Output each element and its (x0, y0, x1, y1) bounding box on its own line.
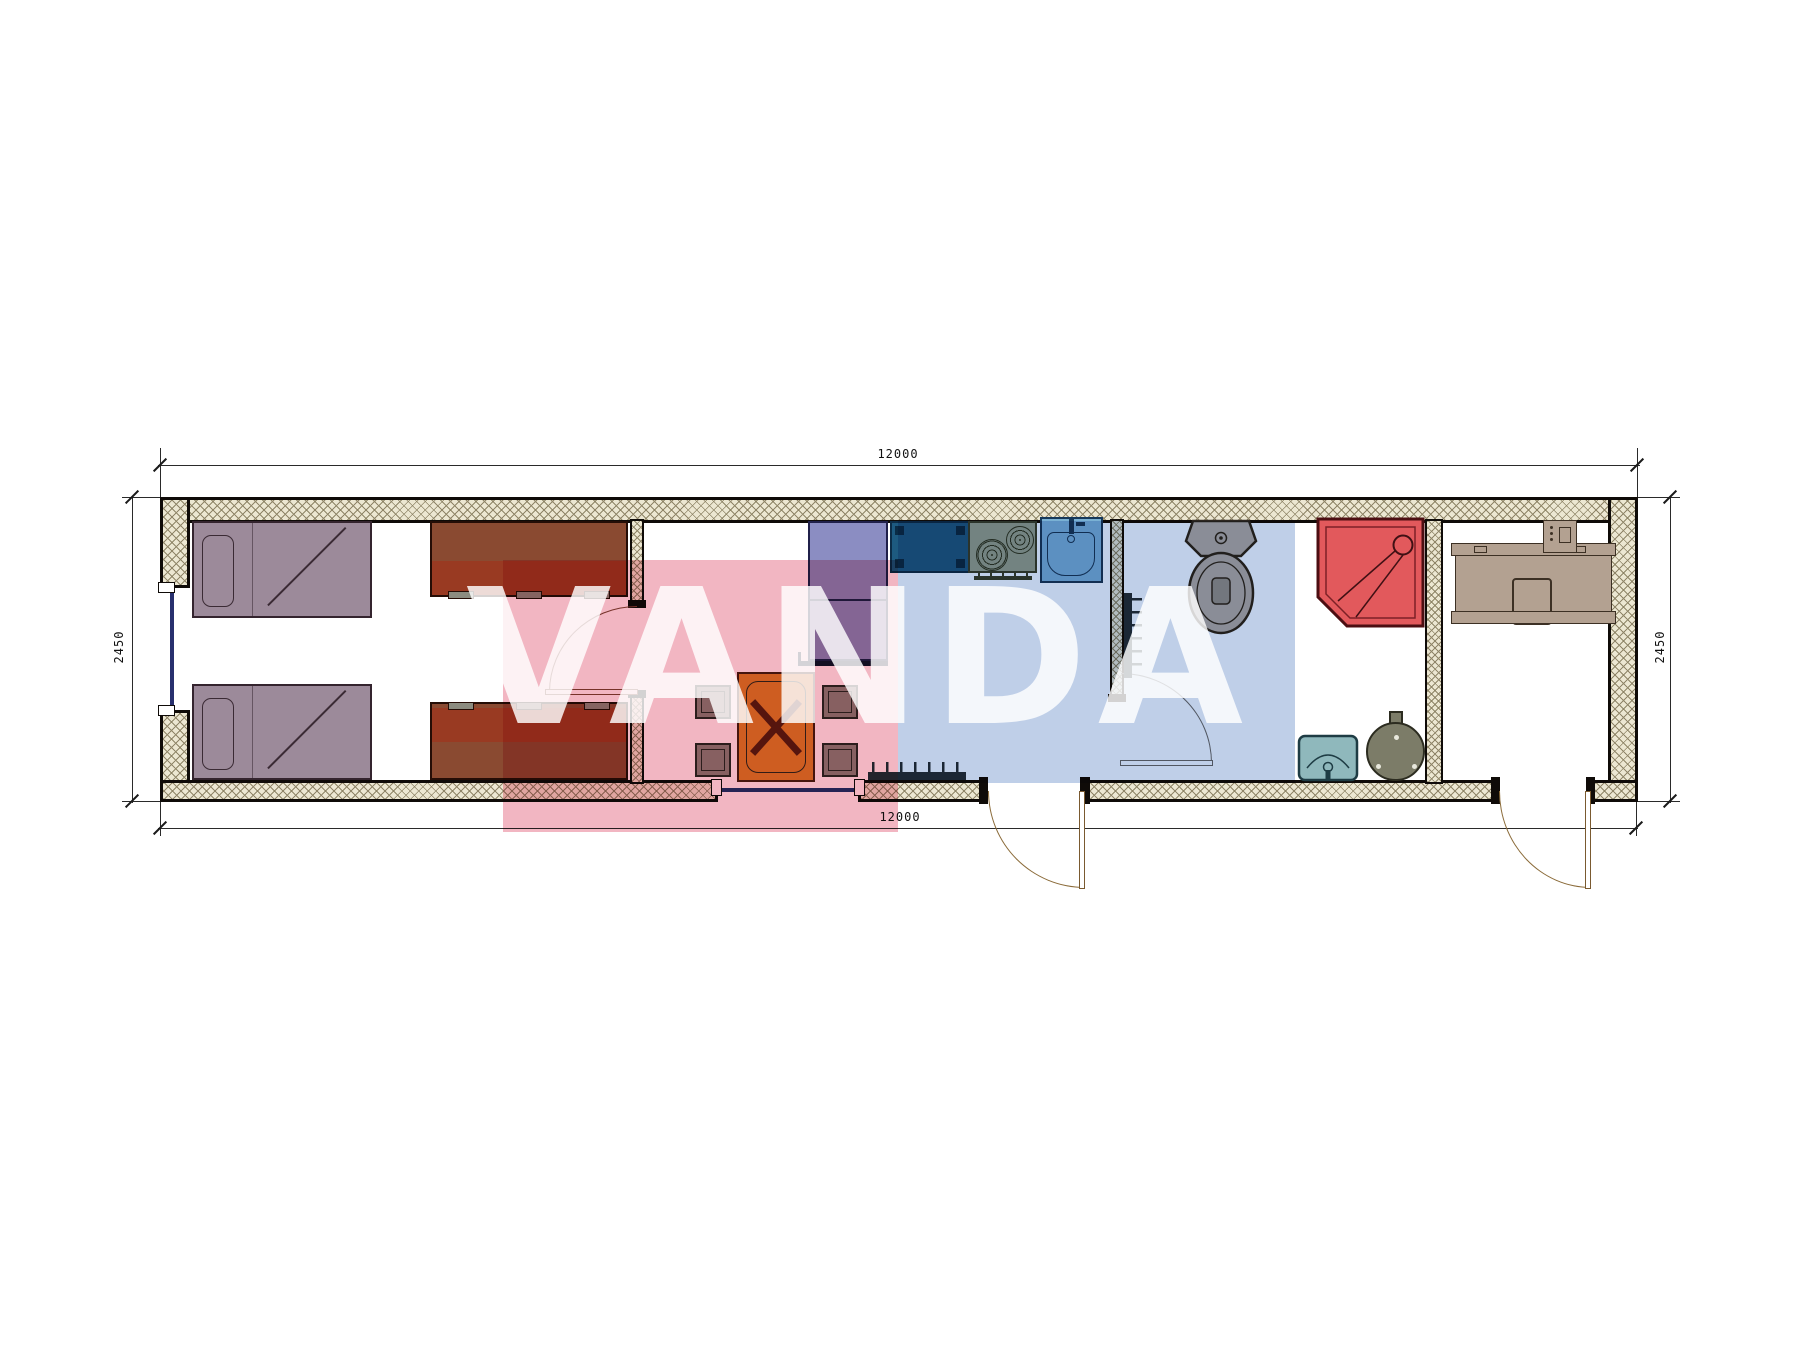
desk-item (1474, 546, 1487, 553)
bed-1 (192, 521, 372, 618)
witness-line (1638, 801, 1680, 802)
sheet-line (252, 523, 253, 616)
sheet-line (252, 686, 253, 778)
computer (1543, 520, 1577, 553)
corner-shower (1316, 517, 1426, 629)
window-sill (158, 582, 175, 593)
window-left-glazing (170, 588, 174, 710)
witness-line (122, 801, 160, 802)
desk-shelf-bottom (1451, 611, 1616, 624)
dim-line-left (132, 497, 133, 803)
entry-door-leaf (1079, 791, 1085, 889)
computer-dot (1550, 538, 1553, 541)
dim-line-bottom (158, 828, 1638, 829)
witness-line (122, 497, 160, 498)
witness-line (1638, 497, 1680, 498)
witness-line (160, 802, 161, 836)
dim-text-top: 12000 (858, 447, 938, 461)
water-heater (1366, 722, 1425, 781)
heater-dot (1412, 764, 1417, 769)
witness-line (1636, 802, 1637, 836)
watermark-text: VANDA (466, 565, 1253, 753)
wall-bottom-4 (1592, 780, 1638, 802)
study-door-leaf (1585, 791, 1591, 889)
bed-2 (192, 684, 372, 780)
dim-line-top (158, 465, 1640, 466)
wash-basin (1297, 734, 1359, 782)
entry-door-arc (988, 791, 1085, 888)
witness-line (160, 448, 161, 497)
dim-line-right (1670, 497, 1671, 803)
pillow (202, 535, 234, 607)
study-door-arc (1499, 791, 1591, 888)
floor-plan-canvas: 12000 12000 2450 2450 (0, 0, 1800, 1350)
witness-line (1637, 448, 1638, 497)
pillow (202, 698, 234, 770)
partition-bath-right (1425, 519, 1443, 784)
dim-text-left: 2450 (112, 617, 126, 677)
desk-shelf-top (1451, 543, 1616, 556)
dim-text-right: 2450 (1653, 617, 1667, 677)
computer-dot (1550, 532, 1553, 535)
heater-dot (1394, 735, 1399, 740)
computer-screen (1559, 527, 1571, 543)
computer-dot (1550, 526, 1553, 529)
window-sill (158, 705, 175, 716)
wall-left-upper (160, 497, 190, 588)
heater-dot (1376, 764, 1381, 769)
